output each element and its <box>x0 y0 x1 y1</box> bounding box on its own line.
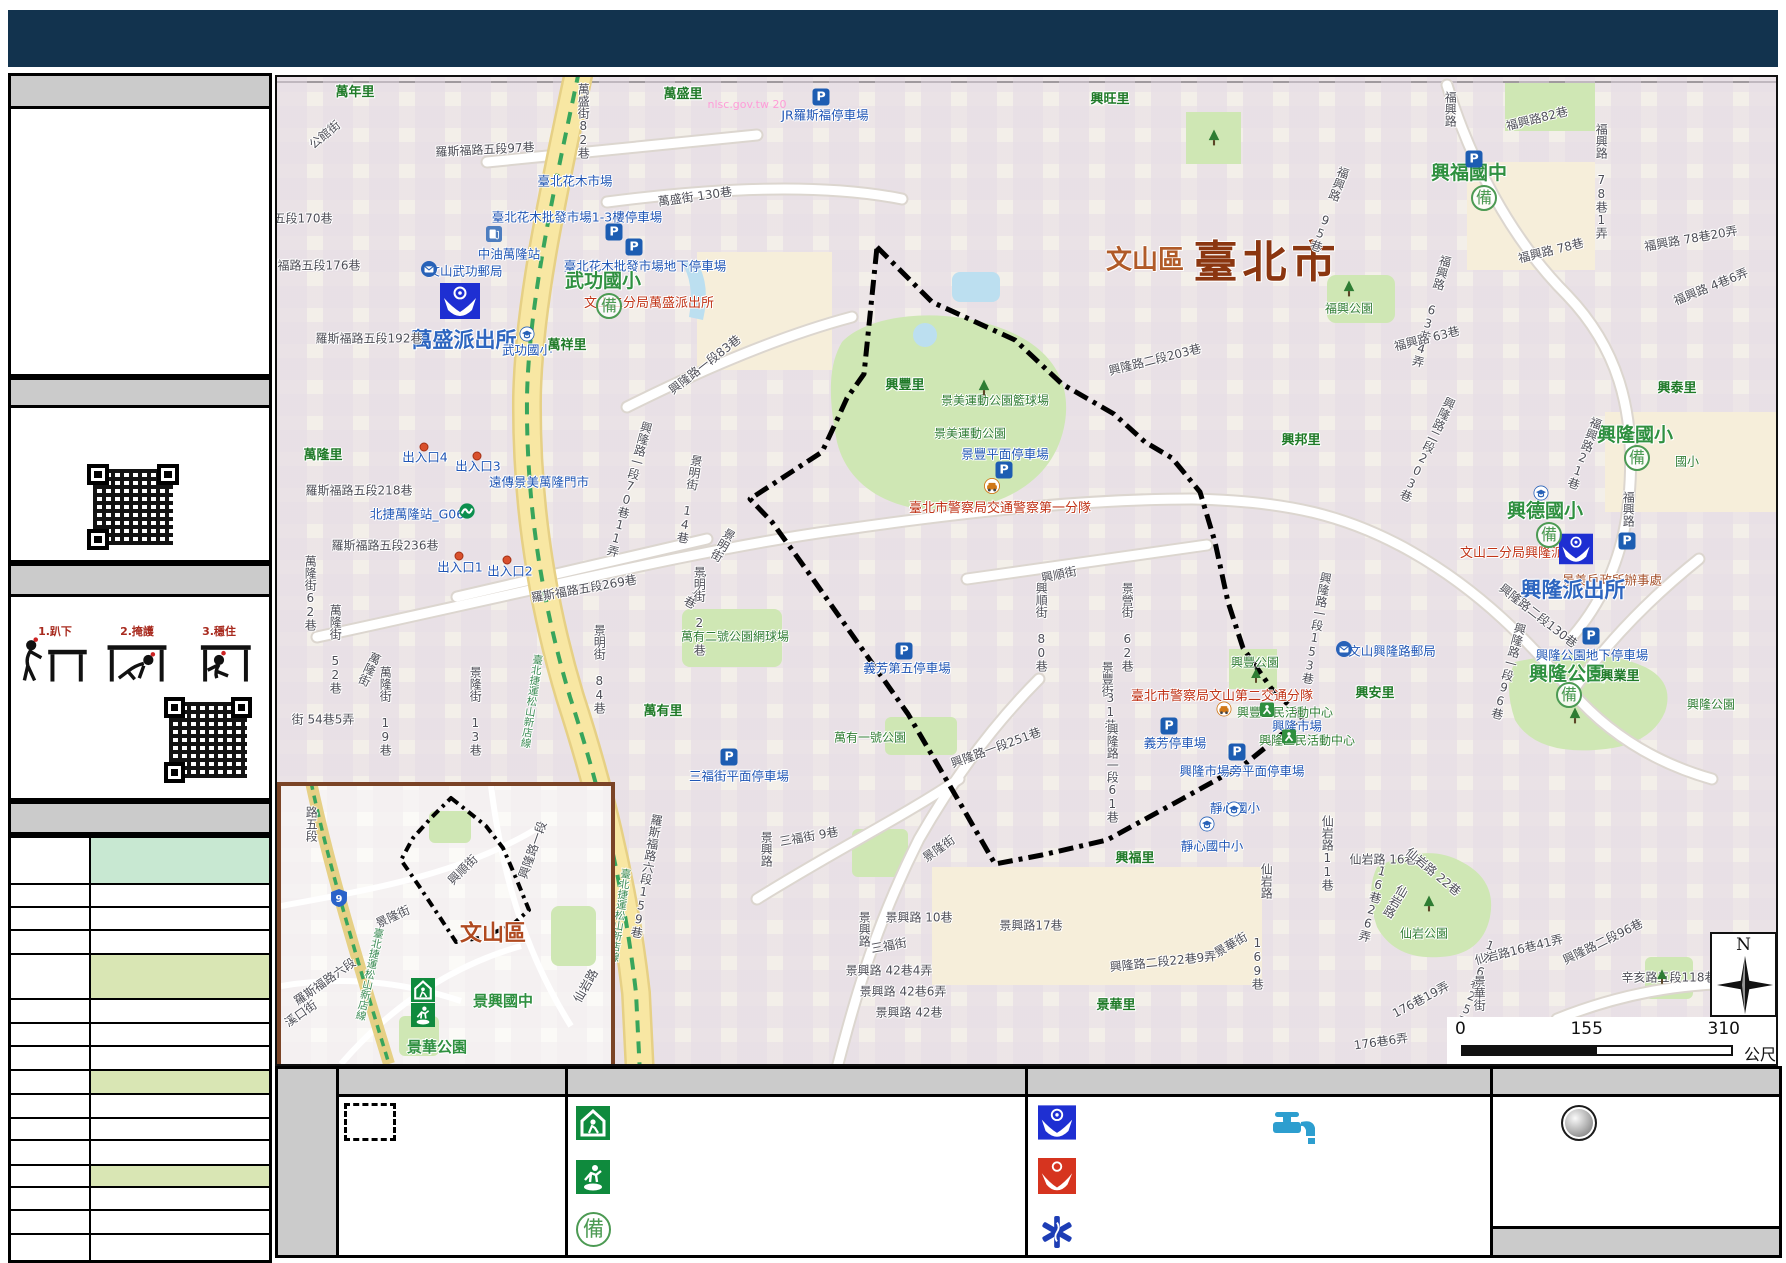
bei-icon: 備 <box>1624 445 1650 471</box>
hold-on-figure-icon <box>185 635 253 685</box>
house-icon <box>411 978 435 1006</box>
map-label: 國小 <box>1675 456 1699 469</box>
legend-table-row <box>11 1095 269 1119</box>
map-label: 萬隆街 19巷 <box>379 666 392 756</box>
scale-tick-2: 310 <box>1708 1019 1740 1039</box>
map-label: 興旺里 <box>1090 93 1129 107</box>
map-label: 興隆國小 <box>1597 426 1673 446</box>
legend-table-symbol-cell <box>11 955 91 998</box>
bei-icon: 備 <box>1471 185 1497 211</box>
map-label: 景營街 62巷 <box>1121 582 1134 672</box>
map-label: 興福里 <box>1115 852 1154 866</box>
main-map: 萬年里萬盛里興旺里nlsc.gov.tw 20JR羅斯福停車場公館街羅斯福路五段… <box>275 75 1778 1066</box>
act-icon <box>1260 702 1274 721</box>
p-icon: P <box>1583 628 1600 645</box>
school-icon <box>1227 802 1242 821</box>
tree-icon <box>978 380 991 401</box>
legend-table-value-cell <box>91 1024 269 1045</box>
legend-table-value-cell <box>91 955 269 998</box>
evacuation-shelter-icon <box>576 1106 610 1144</box>
p-icon: P <box>606 224 623 241</box>
map-label: 169巷 <box>1251 936 1264 990</box>
map-label: 萬隆街62巷 <box>304 555 317 631</box>
legend-table-symbol-cell <box>11 838 91 883</box>
map-label: 遠傳景美萬隆門市 <box>489 475 589 488</box>
map-label: 文山武功郵局 <box>427 264 502 277</box>
shield9-icon: 9 <box>331 889 347 911</box>
legend-table-symbol-cell <box>11 1071 91 1093</box>
legend-table-value-cell <box>91 885 269 906</box>
map-label: 景美運動公園 <box>934 428 1006 441</box>
legend-table-value-cell <box>91 1000 269 1022</box>
tree-icon <box>1423 896 1436 917</box>
scale-unit: 公尺 <box>1744 1041 1776 1065</box>
map-label: 景興路 10巷 <box>885 912 952 925</box>
sidebar: 1.趴下 2.掩護 3.穩住 <box>8 73 272 1257</box>
legend-table-value-cell <box>91 908 269 929</box>
tree-icon <box>1656 969 1668 989</box>
legend-table-symbol-cell <box>11 931 91 953</box>
legend-table-row <box>11 1024 269 1047</box>
legend-strip-header <box>278 1069 1779 1097</box>
map-label: 興隆公園 <box>1687 699 1735 712</box>
map-label: 萬有里 <box>643 705 682 719</box>
tfc-icon <box>984 478 1000 498</box>
sidebar-header-2 <box>8 377 272 408</box>
legend-boundary-symbol <box>344 1103 396 1141</box>
map-label: 景隆街 13巷 <box>469 666 482 756</box>
sidebar-earthquake-box: 1.趴下 2.掩護 3.穩住 <box>8 597 272 801</box>
tree-icon <box>1343 281 1356 302</box>
p-icon: P <box>1229 744 1246 761</box>
tree-icon <box>1250 668 1262 688</box>
legend-table-row <box>11 1047 269 1071</box>
map-label: 出入口4 <box>402 450 447 463</box>
legend-table-row <box>11 1000 269 1024</box>
map-label: 福興路 <box>1622 491 1635 527</box>
legend-table-row <box>11 1211 269 1235</box>
legend-table-row <box>11 885 269 908</box>
ems-star-of-life-icon <box>1040 1215 1074 1253</box>
p-icon: P <box>896 643 913 660</box>
map-label: 仙岩路11巷 <box>1321 815 1334 891</box>
map-label: 斯福路五段176巷 <box>275 260 360 273</box>
title-banner <box>8 10 1778 67</box>
legend-table-value-cell <box>91 1141 269 1164</box>
map-label: 萬隆街 52巷 <box>329 604 342 694</box>
dot-icon <box>420 443 429 452</box>
legend-table-symbol-cell <box>11 1047 91 1069</box>
map-label: 文山興隆路郵局 <box>1348 644 1436 657</box>
dot-icon <box>455 552 464 561</box>
legend-table-symbol-cell <box>11 1119 91 1139</box>
scale-bar: 0 155 310 公尺 <box>1447 1017 1778 1066</box>
cover-figure-icon <box>103 635 171 685</box>
map-label: 景明街 84巷 <box>593 624 606 714</box>
map-label: 三福街平面停車場 <box>689 769 789 782</box>
map-label: 興隆公園地下停車場 <box>1536 648 1649 661</box>
legend-table-symbol-cell <box>11 1141 91 1164</box>
map-label: 景興路 <box>858 911 871 947</box>
map-label: 興安里 <box>1355 687 1394 701</box>
map-label: 景華里 <box>1096 999 1135 1013</box>
p-icon: P <box>996 462 1013 479</box>
gas-icon <box>486 226 502 246</box>
svg-text:9: 9 <box>336 894 343 905</box>
p-icon: P <box>721 749 738 766</box>
map-label: 景興路 42巷4弄 <box>846 965 933 978</box>
sidebar-info-box <box>8 109 272 377</box>
sidebar-header-4 <box>8 801 272 835</box>
p-icon: P <box>1466 151 1483 168</box>
post-icon <box>1336 641 1352 661</box>
map-label: 景華街 <box>1473 975 1486 1011</box>
map-label: 景興路 42巷 <box>875 1007 942 1020</box>
map-label: 景興路17巷 <box>999 920 1062 933</box>
p-icon: P <box>1161 718 1178 735</box>
dot-icon <box>503 556 512 565</box>
map-label: 文山區 <box>1106 247 1184 274</box>
legend-table-value-cell <box>91 1166 269 1186</box>
other-facility-icon <box>1561 1105 1597 1141</box>
legend-table-value-cell <box>91 931 269 953</box>
map-label: 羅斯福路五段236巷 <box>332 540 439 553</box>
map-label: 臺北花木市場 <box>537 174 612 187</box>
tree-icon <box>1208 130 1221 151</box>
map-label: 興順街 80巷 <box>1035 582 1048 672</box>
legend-strip-footer <box>1493 1226 1779 1255</box>
legend-table-row <box>11 955 269 1000</box>
map-label: 靜心國中小 <box>1181 839 1244 852</box>
legend-strip: 備 <box>275 1066 1782 1258</box>
p-icon: P <box>626 239 643 256</box>
map-label: 萬祥里 <box>547 339 586 353</box>
map-label: 興泰里 <box>1657 382 1696 396</box>
map-label: 萬有一號公園 <box>834 732 906 745</box>
sidebar-qr-box-1 <box>8 408 272 563</box>
compass-north-label: N <box>1736 935 1751 955</box>
fire-department-icon <box>1038 1158 1076 1198</box>
legend-table-row <box>11 1166 269 1188</box>
run-icon <box>411 1003 435 1031</box>
map-label: 羅斯福路五段192巷 <box>316 333 423 346</box>
sidebar-legend-table <box>8 835 272 1263</box>
school-icon <box>1200 817 1215 836</box>
legend-table-row <box>11 1141 269 1166</box>
bei-icon: 備 <box>1536 522 1562 548</box>
map-label: 臺北市警察局交通警察第一分隊 <box>909 502 1091 516</box>
map-sheet: 1.趴下 2.掩護 3.穩住 <box>0 0 1786 1263</box>
map-label: nlsc.gov.tw 20 <box>708 99 787 111</box>
map-label: 中油萬隆站 <box>478 247 541 260</box>
legend-table-symbol-cell <box>11 908 91 929</box>
map-label: 興隆路一段61巷 <box>1106 723 1119 823</box>
map-label: 福興公園 <box>1325 303 1373 316</box>
legend-table-symbol-cell <box>11 885 91 906</box>
drill-step-3: 3.穩住 <box>181 623 257 685</box>
legend-strip-side-column <box>278 1069 339 1255</box>
map-label: JR羅斯福停車場 <box>781 108 868 121</box>
legend-table-symbol-cell <box>11 1024 91 1045</box>
tfc-icon <box>1217 702 1232 721</box>
map-label: 景興路 <box>760 831 773 867</box>
map-label: 義芳第五停車場 <box>863 661 951 674</box>
map-label: 仙岩公園 <box>1400 928 1448 941</box>
map-label: 興業里 <box>1600 670 1639 684</box>
bei-icon: 備 <box>596 293 622 319</box>
scale-tick-1: 155 <box>1570 1019 1602 1039</box>
map-label: 景興路 42巷6弄 <box>860 986 947 999</box>
scale-bar-graphic <box>1461 1045 1733 1056</box>
map-label: 辛亥路五段118巷 <box>1622 972 1717 985</box>
map-label: 興邦里 <box>1281 434 1320 448</box>
map-label: 福興路 78巷1弄 <box>1595 123 1608 239</box>
preparedness-site-icon: 備 <box>576 1212 611 1247</box>
legend-table-row <box>11 908 269 931</box>
legend-table-value-cell <box>91 1095 269 1117</box>
legend-table-symbol-cell <box>11 1188 91 1209</box>
legend-table-symbol-cell <box>11 1211 91 1233</box>
map-label: 路五段 <box>305 806 318 842</box>
map-label: 萬有二號公園網球場 <box>681 631 789 644</box>
legend-table-symbol-cell <box>11 1166 91 1186</box>
post-icon <box>421 261 437 281</box>
map-label: 興隆派出所 <box>1521 579 1626 601</box>
legend-table-symbol-cell <box>11 1235 91 1260</box>
drop-figure-icon <box>21 635 89 685</box>
map-label: 興隆市場旁平面停車場 <box>1179 764 1304 777</box>
inset-base-layer <box>281 786 611 1064</box>
map-label: 萬盛派出所 <box>412 329 517 351</box>
map-label: 景豐平面停車場 <box>961 447 1049 460</box>
dot-icon <box>473 452 482 461</box>
map-label: 景興國中 <box>473 994 533 1010</box>
map-label: 景華公園 <box>407 1040 467 1056</box>
water-station-icon <box>1271 1110 1321 1148</box>
scale-tick-0: 0 <box>1455 1019 1466 1039</box>
legend-table-row <box>11 1071 269 1095</box>
map-label: 仙岩路 <box>1260 863 1273 899</box>
inset-locator-map: 路五段羅斯福路六段溪口街景隆街興順街興隆路一段仙岩路臺北捷運松山新店線文山區景興… <box>277 782 615 1066</box>
legend-table-row <box>11 1188 269 1211</box>
map-label: 臺北花木批發市場1-3樓停車場 <box>492 210 662 223</box>
legend-table-row <box>11 1235 269 1260</box>
legend-table-value-cell <box>91 1119 269 1139</box>
map-label: 出入口2 <box>487 564 532 577</box>
map-label: 義芳停車場 <box>1144 736 1207 749</box>
legend-table-value-cell <box>91 1047 269 1069</box>
map-label: 福興路 <box>1444 91 1457 127</box>
map-label: 興豐區民活動中心 <box>1237 707 1333 720</box>
legend-table-row <box>11 838 269 885</box>
map-label: 萬盛里 <box>663 88 702 102</box>
outdoor-evacuation-site-icon <box>576 1160 610 1198</box>
legend-table-symbol-cell <box>11 1095 91 1117</box>
police-station-icon <box>1038 1105 1076 1144</box>
legend-table-value-cell <box>91 838 269 883</box>
drill-step-1: 1.趴下 <box>17 623 93 685</box>
bei-icon: 備 <box>1556 682 1582 708</box>
drill-step-2: 2.掩護 <box>99 623 175 685</box>
compass-star-icon <box>1715 954 1775 1016</box>
school-icon <box>1534 486 1549 505</box>
map-label: 羅斯福路五段218巷 <box>306 485 413 498</box>
qr-code-1 <box>87 464 179 550</box>
sidebar-header-3 <box>8 563 272 597</box>
legend-table-value-cell <box>91 1071 269 1093</box>
legend-table-row <box>11 1119 269 1141</box>
act-icon <box>1282 729 1296 748</box>
pol-icon <box>1559 533 1593 568</box>
map-label: 出入口3 <box>455 459 500 472</box>
legend-table-row <box>11 931 269 955</box>
map-label: 興隆區民活動中心 <box>1259 735 1355 748</box>
tree-icon <box>1569 708 1582 729</box>
metro-icon <box>459 503 476 524</box>
map-label: 出入口1 <box>437 560 482 573</box>
map-label: 萬盛街82巷 <box>577 83 590 159</box>
p-icon: P <box>813 89 830 106</box>
sidebar-header-1 <box>8 73 272 109</box>
compass-rose: N <box>1710 932 1777 1017</box>
legend-table-value-cell <box>91 1188 269 1209</box>
map-label: 街 54巷5弄 <box>292 714 355 727</box>
legend-table-value-cell <box>91 1235 269 1260</box>
map-label: 文山區 <box>460 922 526 945</box>
map-label: 興德國小 <box>1507 502 1583 522</box>
legend-table-value-cell <box>91 1211 269 1233</box>
map-label: 萬隆里 <box>303 449 342 463</box>
pol-icon <box>440 283 480 324</box>
map-label: 興豐里 <box>885 379 924 393</box>
map-label: 興隆市場 <box>1272 719 1322 732</box>
map-label: 武功國小 <box>565 272 641 292</box>
p-icon: P <box>1619 533 1636 550</box>
legend-table-symbol-cell <box>11 1000 91 1022</box>
map-label: 路五段170巷 <box>275 213 332 226</box>
map-label: 北捷萬隆站_G06 <box>370 507 464 520</box>
school-icon <box>520 327 535 346</box>
map-label: 萬年里 <box>335 86 374 100</box>
qr-code-2 <box>164 697 252 783</box>
map-label: 景美運動公園籃球場 <box>941 395 1049 408</box>
